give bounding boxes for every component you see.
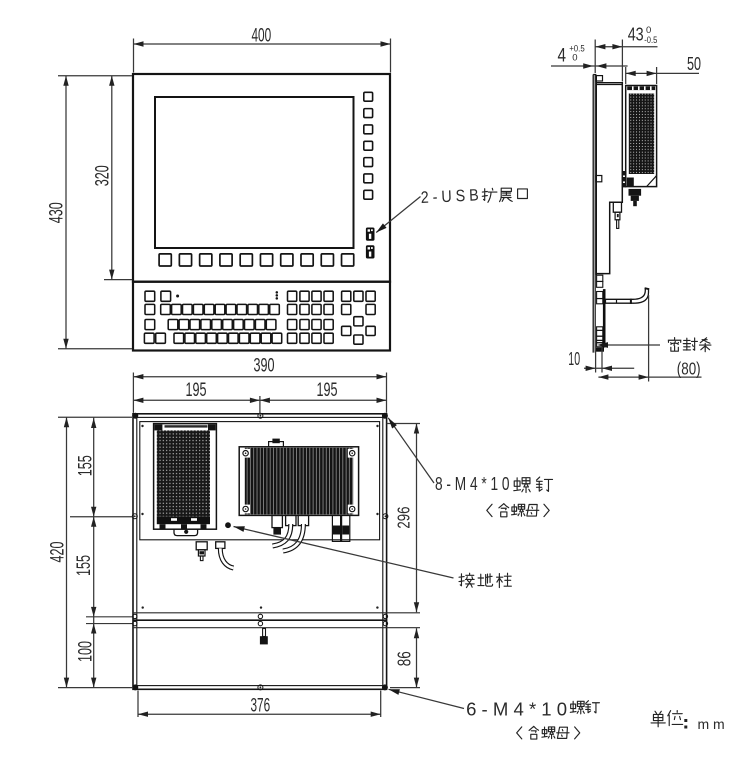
svg-text:50: 50 [687, 54, 701, 74]
svg-text:155: 155 [74, 555, 95, 576]
svg-text:195: 195 [317, 380, 338, 401]
svg-text:(80): (80) [677, 359, 701, 379]
svg-text:195: 195 [186, 380, 207, 401]
svg-text:4: 4 [558, 46, 567, 67]
svg-text:0: 0 [572, 53, 577, 64]
svg-text:10: 10 [568, 349, 580, 369]
svg-text:-0.5: -0.5 [644, 35, 657, 46]
svg-text:420: 420 [48, 542, 69, 563]
svg-text:100: 100 [76, 641, 97, 662]
svg-text:86: 86 [395, 651, 415, 666]
svg-text:2 - U S B: 2 - U S B [420, 186, 479, 207]
svg-text:390: 390 [254, 355, 275, 376]
svg-text:155: 155 [76, 455, 97, 476]
svg-text:43: 43 [628, 25, 644, 45]
svg-text:430: 430 [47, 202, 68, 223]
svg-text:6 - M 4 * 1 0: 6 - M 4 * 1 0 [466, 700, 567, 720]
svg-text:296: 296 [394, 507, 414, 529]
svg-text:320: 320 [92, 165, 113, 186]
svg-text:8 - M 4 * 1 0: 8 - M 4 * 1 0 [435, 474, 510, 494]
svg-text:376: 376 [250, 695, 270, 716]
svg-text:m m: m m [698, 716, 725, 732]
svg-text:400: 400 [251, 26, 271, 47]
